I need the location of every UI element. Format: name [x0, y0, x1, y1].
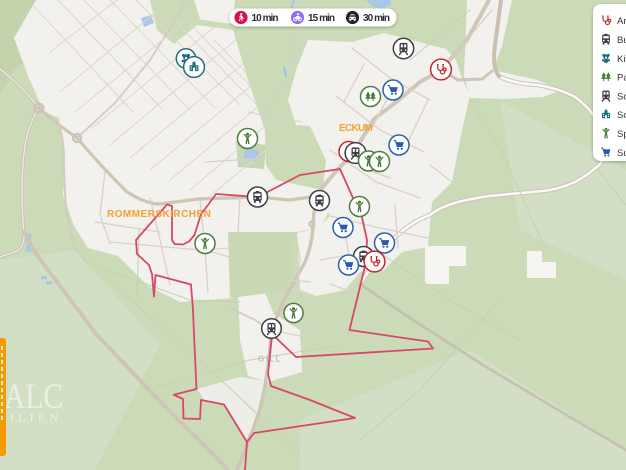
svg-text:Spielplatz: Spielplatz: [617, 129, 626, 140]
svg-text:Arzt: Arzt: [617, 16, 626, 27]
svg-text:MOBILIEN: MOBILIEN: [0, 411, 62, 425]
svg-text:GILL: GILL: [258, 355, 282, 364]
svg-text:15 min: 15 min: [308, 13, 335, 24]
svg-text:10 min: 10 min: [252, 13, 279, 24]
svg-text:Supermarkt: Supermarkt: [617, 148, 626, 159]
svg-text:ROMMERSKIRCHEN: ROMMERSKIRCHEN: [107, 209, 211, 220]
svg-text:ECKUM: ECKUM: [339, 123, 373, 134]
svg-text:Park: Park: [617, 73, 626, 84]
svg-text:Bushaltestelle: Bushaltestelle: [617, 35, 626, 46]
svg-text:Schienenverkehr: Schienenverkehr: [617, 91, 626, 102]
svg-text:30 min: 30 min: [363, 13, 390, 24]
svg-text:Kindergarten: Kindergarten: [617, 54, 626, 65]
svg-text:Schule: Schule: [617, 110, 626, 121]
